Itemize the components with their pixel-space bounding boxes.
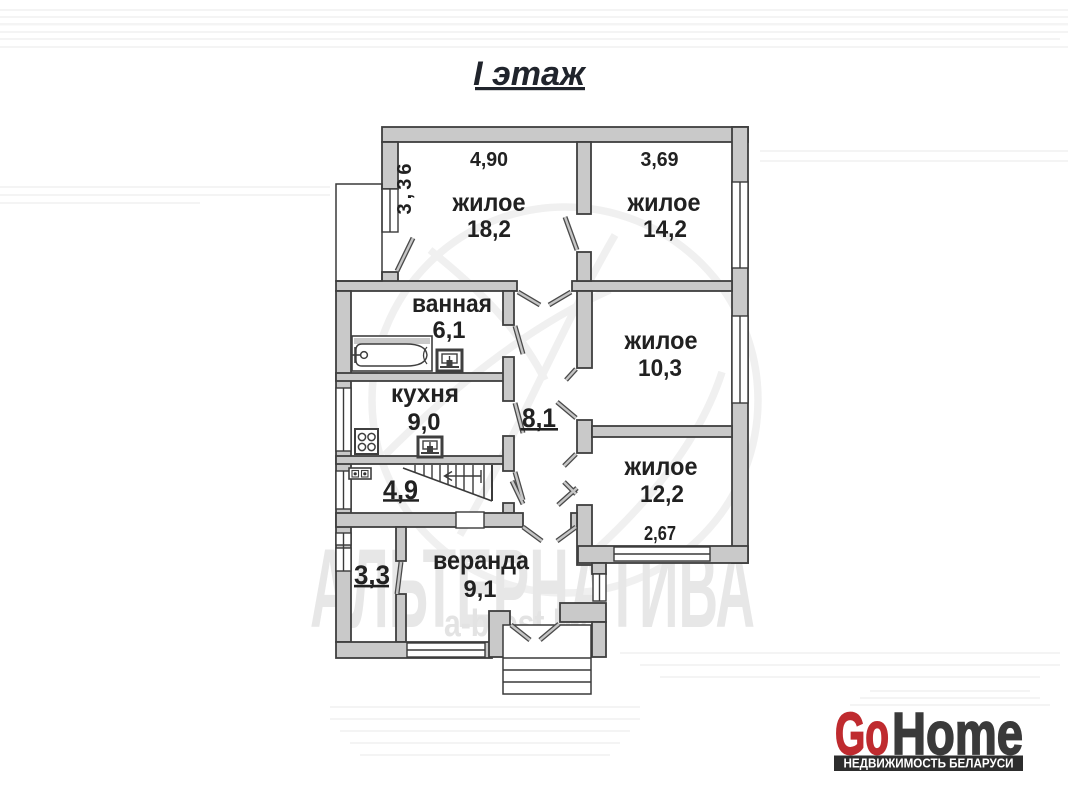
svg-text:18,2: 18,2 (467, 216, 511, 243)
svg-text:4,90: 4,90 (470, 149, 508, 171)
svg-text:жилое: жилое (452, 189, 526, 217)
svg-text:кухня: кухня (391, 380, 459, 408)
svg-text:жилое: жилое (624, 453, 698, 481)
svg-text:9,0: 9,0 (408, 409, 441, 436)
svg-text:12,2: 12,2 (640, 481, 684, 508)
svg-text:ванная: ванная (412, 290, 492, 318)
svg-text:2,67: 2,67 (644, 523, 676, 545)
svg-text:6,1: 6,1 (433, 317, 466, 344)
svg-text:жилое: жилое (627, 189, 701, 217)
svg-text:веранда: веранда (433, 545, 529, 575)
svg-text:НЕДВИЖИМОСТЬ БЕЛАРУСИ: НЕДВИЖИМОСТЬ БЕЛАРУСИ (844, 757, 1014, 771)
svg-text:жилое: жилое (624, 327, 698, 355)
svg-text:3,69: 3,69 (641, 149, 679, 171)
svg-text:14,2: 14,2 (643, 216, 687, 243)
svg-text:10,3: 10,3 (638, 355, 682, 382)
svg-text:9,1: 9,1 (464, 576, 497, 603)
svg-text:3,36: 3,36 (394, 160, 416, 215)
